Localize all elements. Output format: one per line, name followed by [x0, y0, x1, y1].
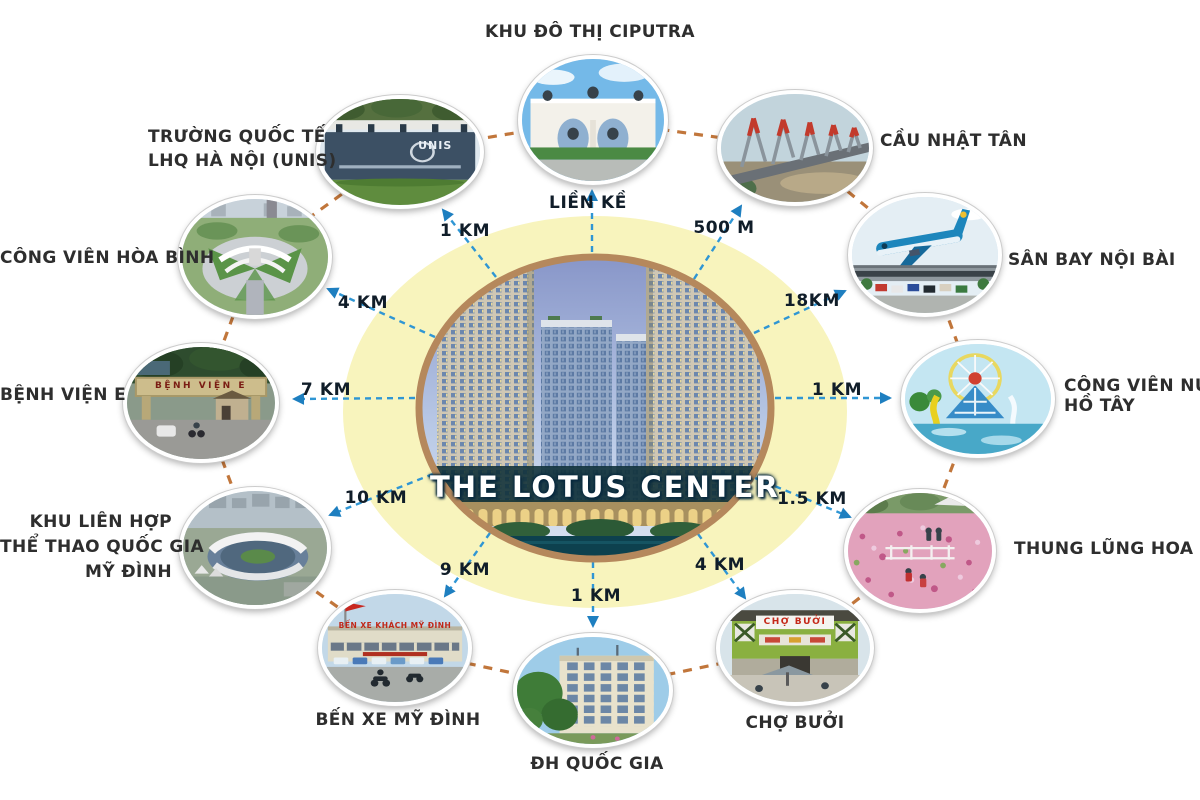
distance-label-dh-quoc-gia: 1 KM: [541, 586, 651, 606]
location-label-truong-quoc-te-unis: TRƯỜNG QUỐC TẾ LHQ HÀ NỘI (UNIS): [148, 125, 320, 173]
distance-label-ben-xe-my-dinh: 9 KM: [410, 560, 520, 580]
distance-label-thung-lung-hoa: 1.5 KM: [757, 489, 867, 509]
location-label-ben-xe-my-dinh: BẾN XE MỸ ĐÌNH: [288, 708, 508, 732]
location-map-infographic: THE LOTUS CENTER: [0, 0, 1200, 800]
location-label-khu-do-thi-ciputra: KHU ĐÔ THỊ CIPUTRA: [430, 20, 750, 44]
flower-valley-illustration: [848, 493, 992, 609]
hospital-gate-illustration: [127, 347, 275, 459]
location-label-benh-vien-e: BỆNH VIỆN E: [0, 383, 118, 407]
distance-label-san-bay-noi-bai: 18KM: [757, 291, 867, 311]
hospital-sign-text: BỆNH VIỆN E: [127, 381, 275, 391]
location-photo-cong-vien-nuoc-ho-tay: [901, 340, 1055, 458]
bus-station-sign-text: BẾN XE KHÁCH MỸ ĐÌNH: [322, 621, 468, 630]
location-label-khu-lien-hop-the-thao: KHU LIÊN HỢP THỂ THAO QUỐC GIA MỸ ĐÌNH: [0, 510, 172, 585]
distance-label-truong-quoc-te-unis: 1 KM: [410, 221, 520, 241]
distance-label-cong-vien-nuoc-ho-tay: 1 KM: [782, 380, 892, 400]
distance-label-khu-do-thi-ciputra: LIỀN KỀ: [533, 193, 643, 213]
distance-label-benh-vien-e: 7 KM: [271, 380, 381, 400]
airport-plane-illustration: [852, 197, 998, 313]
market-sign-text: CHỢ BƯỞI: [720, 617, 870, 627]
location-label-dh-quoc-gia: ĐH QUỐC GIA: [497, 752, 697, 776]
bridge-illustration: [721, 94, 869, 202]
location-photo-cau-nhat-tan: [717, 90, 873, 206]
location-photo-ben-xe-my-dinh: BẾN XE KHÁCH MỸ ĐÌNH: [318, 590, 472, 706]
location-label-san-bay-noi-bai: SÂN BAY NỘI BÀI: [1008, 248, 1198, 272]
stadium-illustration: [183, 491, 327, 605]
location-label-cong-vien-hoa-binh: CÔNG VIÊN HÒA BÌNH: [0, 246, 166, 270]
location-label-cau-nhat-tan: CẦU NHẬT TÂN: [880, 129, 1060, 153]
school-sign-text: UNIS: [397, 139, 474, 152]
market-illustration: [720, 594, 870, 702]
location-photo-benh-vien-e: BỆNH VIỆN E: [123, 343, 279, 463]
location-label-cong-vien-nuoc-ho-tay: CÔNG VIÊN NƯỚC HỒ TÂY: [1064, 376, 1200, 416]
project-title: THE LOTUS CENTER: [430, 470, 760, 504]
location-label-cho-buoi: CHỢ BƯỞI: [714, 711, 876, 735]
distance-label-cho-buoi: 4 KM: [665, 555, 775, 575]
ciputra-gate-illustration: [522, 59, 664, 181]
location-photo-khu-do-thi-ciputra: [518, 55, 668, 185]
distance-label-khu-lien-hop-the-thao: 10 KM: [321, 488, 431, 508]
distance-label-cau-nhat-tan: 500 M: [669, 218, 779, 238]
university-illustration: [517, 637, 669, 744]
location-label-thung-lung-hoa: THUNG LŨNG HOA: [1014, 537, 1196, 561]
location-photo-cho-buoi: CHỢ BƯỞI: [716, 590, 874, 706]
location-photo-dh-quoc-gia: [513, 633, 673, 748]
water-park-illustration: [905, 344, 1051, 454]
bus-station-illustration: [322, 594, 468, 702]
location-photo-san-bay-noi-bai: [848, 193, 1002, 317]
location-photo-truong-quoc-te-unis: UNIS: [316, 95, 484, 209]
distance-label-cong-vien-hoa-binh: 4 KM: [308, 293, 418, 313]
